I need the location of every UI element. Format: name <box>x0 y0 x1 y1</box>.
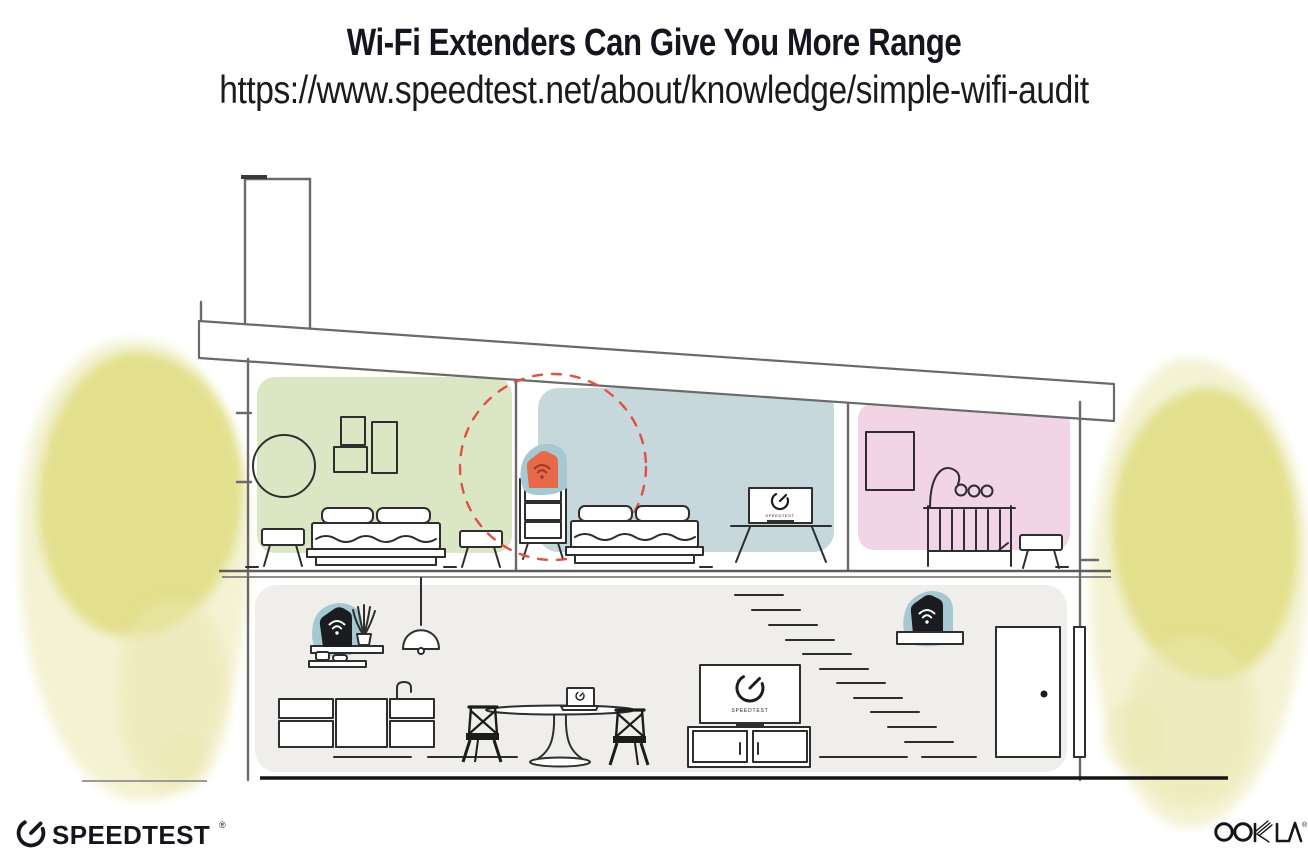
door-side-panel <box>1074 627 1085 757</box>
crib-mobile <box>930 468 993 508</box>
ground-line <box>82 778 1228 781</box>
chimney <box>241 177 310 339</box>
house-line-art: SPEEDTEST <box>0 0 1308 861</box>
speedtest-wordmark: SPEEDTEST <box>52 820 210 850</box>
crib <box>924 506 1015 566</box>
cups-shelf <box>309 652 366 667</box>
speedtest-logo: SPEEDTEST ® <box>19 820 226 850</box>
wifi-extender-highlighted <box>520 444 567 495</box>
stool-nursery <box>1020 535 1062 568</box>
stool-green-right <box>460 531 502 567</box>
picture-frames <box>334 417 397 473</box>
floor-line <box>219 571 1111 577</box>
mirror <box>253 435 315 497</box>
infographic: Wi-Fi Extenders Can Give You More Range … <box>0 0 1308 861</box>
chair-left <box>463 707 501 762</box>
wifi-extender-living <box>897 591 963 646</box>
faucet <box>397 682 411 699</box>
ookla-k-hatch <box>1255 821 1272 842</box>
bed-green <box>307 508 445 565</box>
tv-screen-label: SPEEDTEST <box>765 513 794 518</box>
ookla-registered-mark: ® <box>1302 821 1308 829</box>
tv-bedroom: SPEEDTEST <box>731 488 831 562</box>
picture-frame-nursery <box>866 432 914 490</box>
laptop <box>561 688 598 710</box>
kitchen-cabinets <box>279 682 434 747</box>
wifi-router-kitchen <box>311 603 383 656</box>
tv-living: SPEEDTEST <box>700 665 800 728</box>
roof <box>199 302 1114 421</box>
tv-screen-label: SPEEDTEST <box>732 708 769 714</box>
speedtest-registered-mark: ® <box>219 820 226 830</box>
chair-right <box>610 710 648 765</box>
door <box>996 627 1060 757</box>
pendant-lamp <box>403 578 439 654</box>
ookla-logo: OOKLA ® <box>1216 821 1308 842</box>
bed-blue <box>566 506 703 563</box>
speedtest-gauge-icon <box>19 822 44 845</box>
tv-cabinet <box>688 727 810 767</box>
stool-green-left <box>262 529 304 566</box>
doorknob <box>1041 691 1048 698</box>
